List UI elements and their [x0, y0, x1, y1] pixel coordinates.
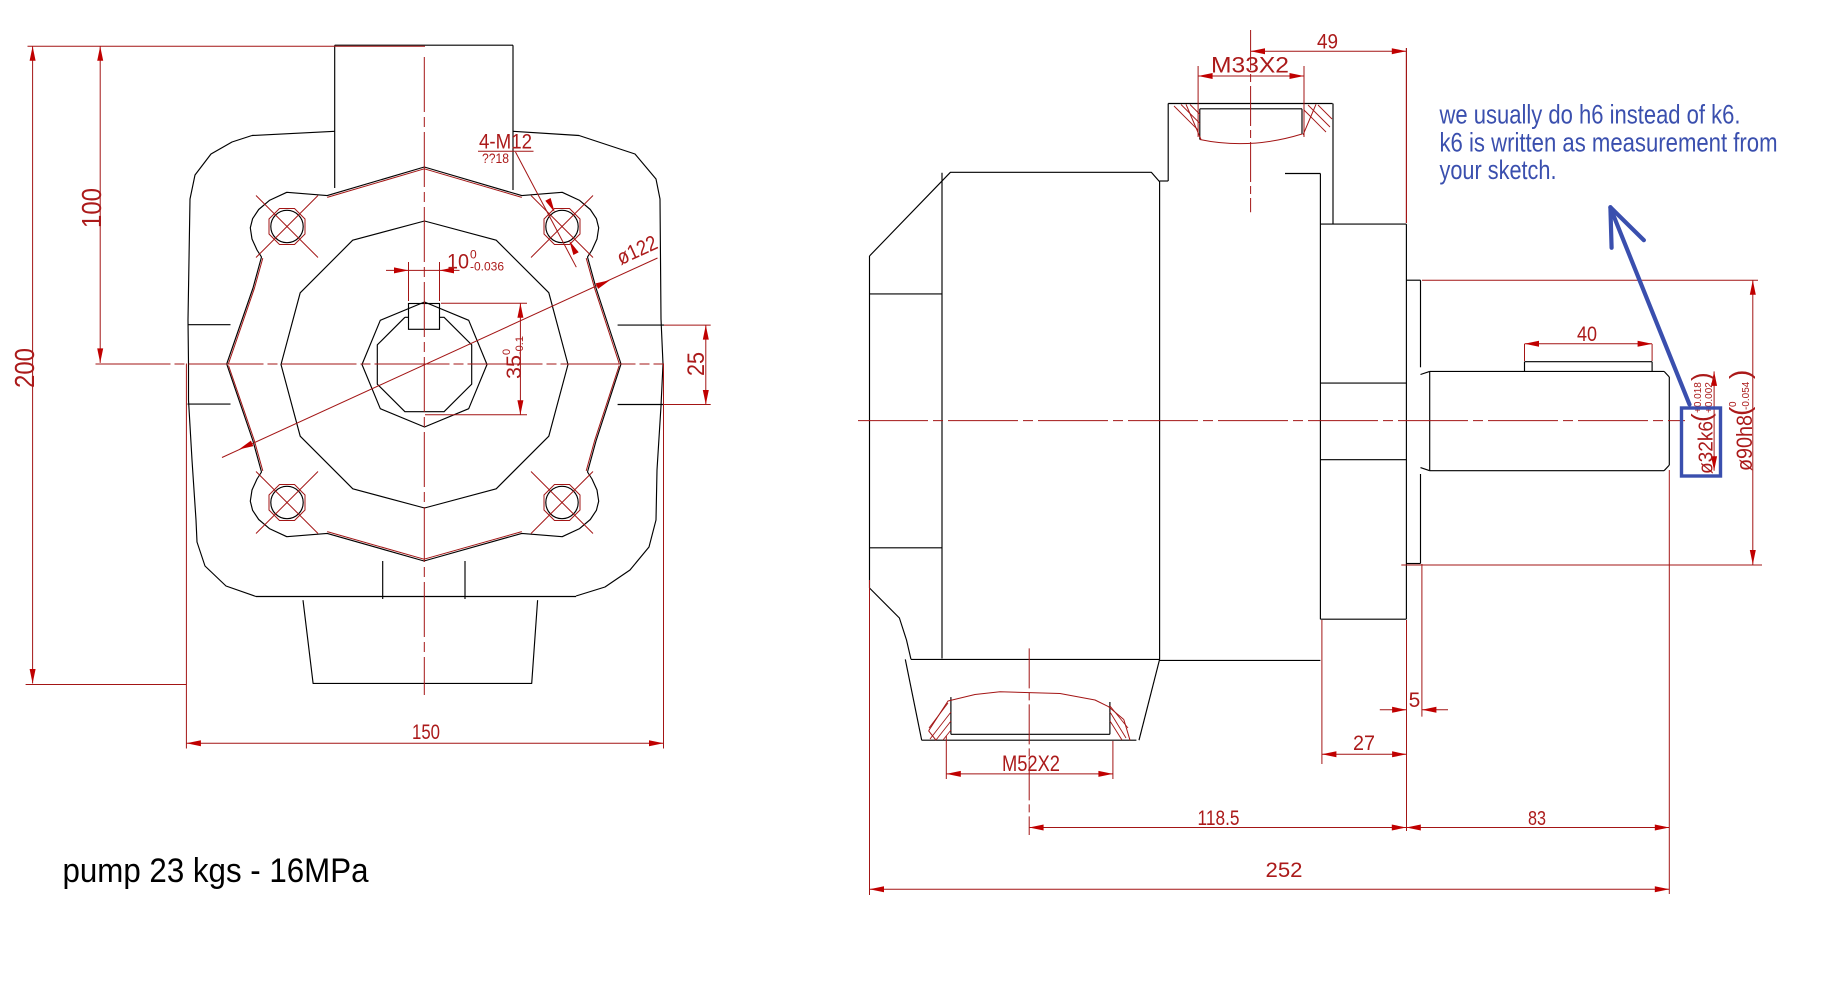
svg-text:0: 0	[501, 349, 513, 355]
svg-text:(: (	[1686, 413, 1716, 422]
svg-text:100: 100	[76, 188, 107, 228]
svg-text:252: 252	[1266, 859, 1303, 882]
svg-text:35: 35	[503, 355, 526, 379]
svg-text:150: 150	[412, 721, 440, 744]
svg-text:ø90h8: ø90h8	[1732, 415, 1757, 471]
svg-text:): )	[1686, 372, 1716, 381]
svg-text:M52X2: M52X2	[1002, 751, 1060, 776]
svg-text:k6 is written as measurement f: k6 is written as measurement from	[1440, 127, 1778, 157]
svg-text:25: 25	[683, 352, 710, 376]
svg-text:-0.036: -0.036	[470, 260, 504, 274]
svg-text:27: 27	[1353, 732, 1375, 755]
svg-text:we usually do h6 instead of k6: we usually do h6 instead of k6.	[1439, 100, 1741, 130]
svg-text:-0.054: -0.054	[1741, 381, 1752, 410]
svg-text:83: 83	[1528, 808, 1546, 830]
svg-text:-0.1: -0.1	[514, 336, 526, 355]
svg-text:49: 49	[1317, 31, 1338, 54]
svg-text:118.5: 118.5	[1198, 807, 1240, 830]
svg-text:your sketch.: your sketch.	[1440, 155, 1557, 185]
svg-text:0: 0	[1728, 401, 1739, 407]
svg-text:M33X2: M33X2	[1211, 52, 1289, 77]
svg-text:200: 200	[9, 348, 40, 388]
svg-text:40: 40	[1577, 323, 1597, 346]
svg-text:ø32k6: ø32k6	[1696, 421, 1718, 474]
svg-text:): )	[1724, 370, 1755, 379]
svg-text:pump 23 kgs - 16MPa: pump 23 kgs - 16MPa	[63, 852, 369, 890]
svg-text:ø122: ø122	[613, 231, 661, 269]
svg-text:5: 5	[1409, 689, 1421, 712]
svg-text:??18: ??18	[482, 151, 509, 166]
svg-text:10: 10	[447, 251, 469, 274]
